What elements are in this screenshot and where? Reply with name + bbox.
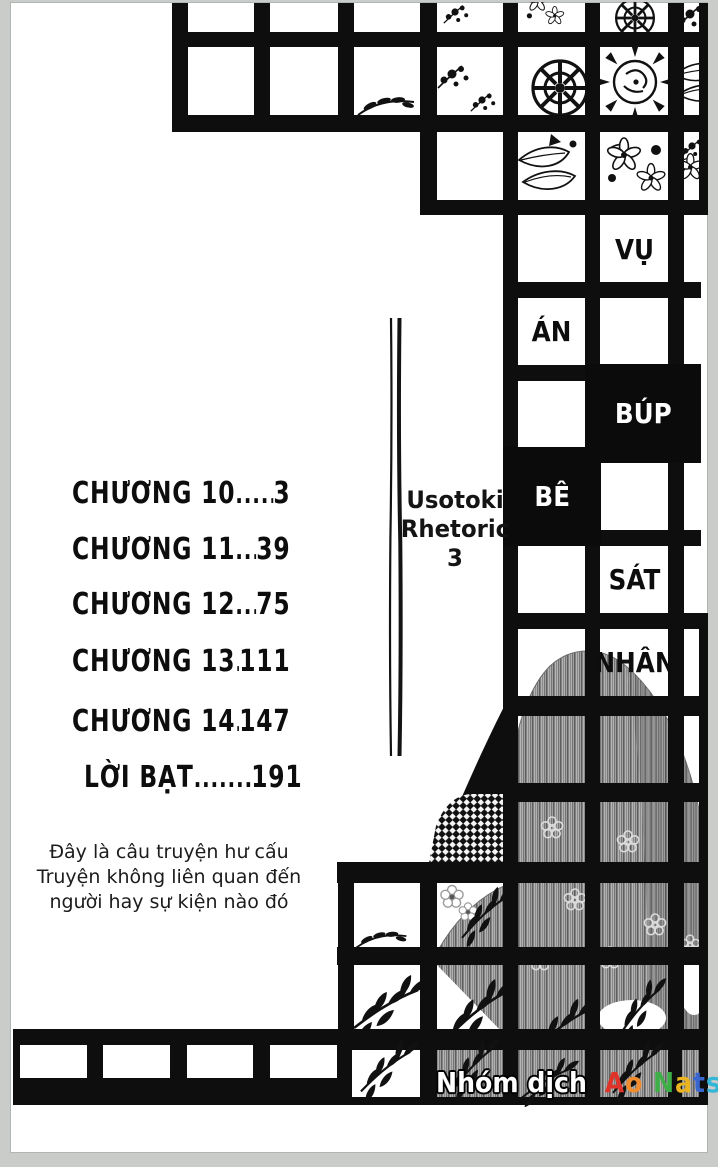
toc-entry: CHƯƠNG 11 .......... 39 [72, 532, 290, 564]
toc-entry: CHƯƠNG 13 ......... 111 [72, 644, 290, 676]
dot-leader: ............ [235, 480, 273, 510]
series-volume-number: 3 [397, 544, 513, 573]
toc-entry: LỜI BẠT ......... 191 [84, 760, 302, 792]
title-cell-be-text: BÊ [534, 480, 570, 513]
dot-leader: .......... [235, 536, 256, 566]
series-title-line2: Rhetoric [397, 515, 513, 544]
chapter-label: LỜI BẠT [84, 760, 194, 795]
dot-leader: ......... [235, 591, 256, 621]
disclaimer-line2: Truyện không liên quan đến [34, 865, 304, 890]
chapter-label: CHƯƠNG 12 [72, 587, 235, 622]
title-cell-vu: VỤ [605, 216, 664, 282]
title-cell-bup-text: BÚP [615, 397, 672, 430]
credit-group-name: Ao Natsu [605, 1066, 718, 1099]
chapter-page: 75 [256, 587, 290, 622]
title-cell-an: ÁN [521, 297, 582, 365]
chapter-label: CHƯƠNG 10 [72, 476, 235, 511]
series-title-line1: Usotoki [397, 486, 513, 515]
manga-contents-page: CHƯƠNG 10 ............ 3 CHƯƠNG 11 .....… [0, 0, 718, 1167]
chapter-page: 191 [251, 760, 302, 795]
toc-entry: CHƯƠNG 14 ........ 147 [72, 704, 290, 736]
chapter-page: 147 [239, 704, 290, 739]
disclaimer-note: Đây là câu truyện hư cấu Truyện không li… [34, 840, 304, 915]
disclaimer-line3: người hay sự kiện nào đó [34, 890, 304, 915]
series-title: Usotoki Rhetoric 3 [397, 486, 513, 573]
title-cell-nhan: NHÂN [601, 628, 670, 696]
chapter-label: CHƯƠNG 14 [72, 704, 235, 739]
translator-credit: Nhóm dịch Ao Natsu [436, 1066, 706, 1099]
floral-ornaments-top [358, 0, 718, 197]
chapter-label: CHƯƠNG 11 [72, 532, 235, 567]
toc-entry: CHƯƠNG 12 ......... 75 [72, 587, 290, 619]
toc-entry: CHƯƠNG 10 ............ 3 [72, 476, 290, 508]
title-cell-bup: BÚP [585, 364, 701, 463]
disclaimer-line1: Đây là câu truyện hư cấu [34, 840, 304, 865]
title-cell-sat: SÁT [605, 545, 664, 613]
chapter-page: 111 [239, 644, 290, 679]
chapter-page: 39 [256, 532, 290, 567]
credit-group-label: Nhóm dịch [436, 1066, 587, 1099]
chapter-page: 3 [273, 476, 290, 511]
dot-leader: ......... [194, 764, 252, 794]
chapter-label: CHƯƠNG 13 [72, 644, 235, 679]
title-cell-be: BÊ [503, 447, 601, 546]
